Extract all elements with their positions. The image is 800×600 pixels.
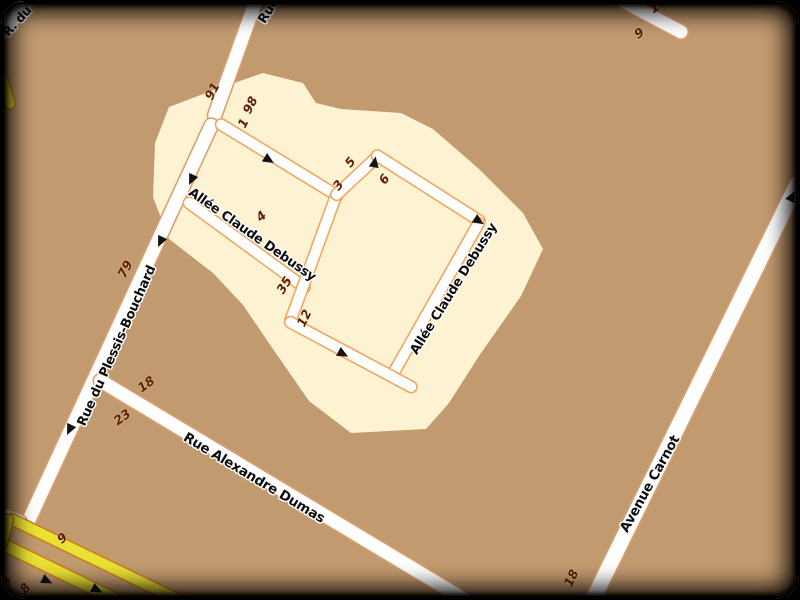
house-number: 18: [135, 373, 158, 395]
one-way-arrow-icon: [40, 574, 54, 588]
house-number: 23: [111, 406, 134, 428]
street-label-r-du: R. du: [1, 3, 34, 39]
highlight-region-allee-claude-debussy: [1, 1, 799, 599]
house-number: 9: [631, 24, 646, 41]
road-avenue-carnot: [579, 173, 799, 599]
house-number: 8: [16, 580, 33, 596]
street-label-avenue-carnot: Avenue Carnot: [617, 433, 683, 535]
house-number: 79: [114, 258, 135, 280]
house-number: 18: [560, 567, 581, 589]
map-viewport[interactable]: R. du Rue Rue du Plessis-Bouchard Allée …: [1, 1, 799, 599]
one-way-arrow-icon: [369, 156, 381, 169]
street-label-rue-alexandre-dumas: Rue Alexandre Dumas: [180, 429, 327, 526]
road-yellow-stub-left: [1, 52, 16, 109]
house-number: 14: [1, 573, 14, 596]
map-frame: R. du Rue Rue du Plessis-Bouchard Allée …: [0, 0, 800, 600]
